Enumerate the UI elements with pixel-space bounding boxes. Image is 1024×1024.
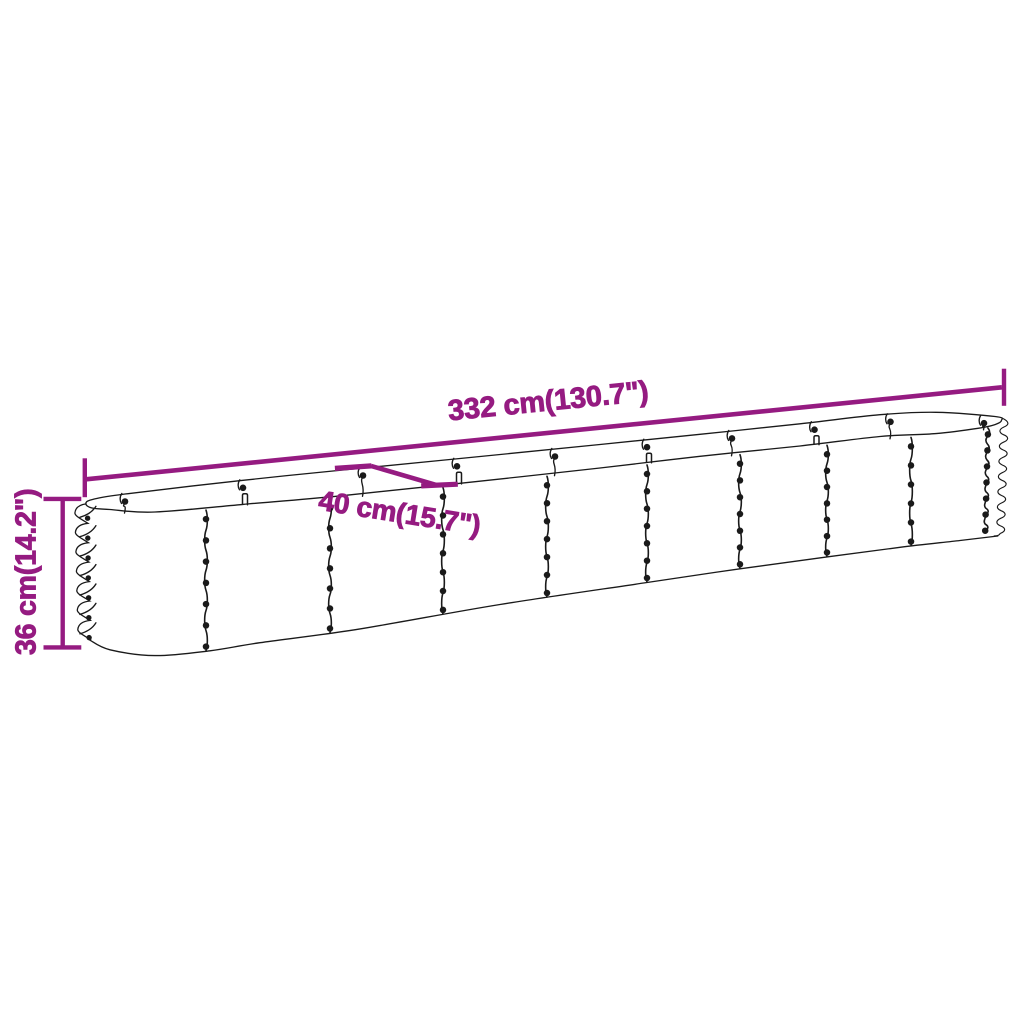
svg-text:36 cm(14.2"): 36 cm(14.2") [11,489,43,655]
